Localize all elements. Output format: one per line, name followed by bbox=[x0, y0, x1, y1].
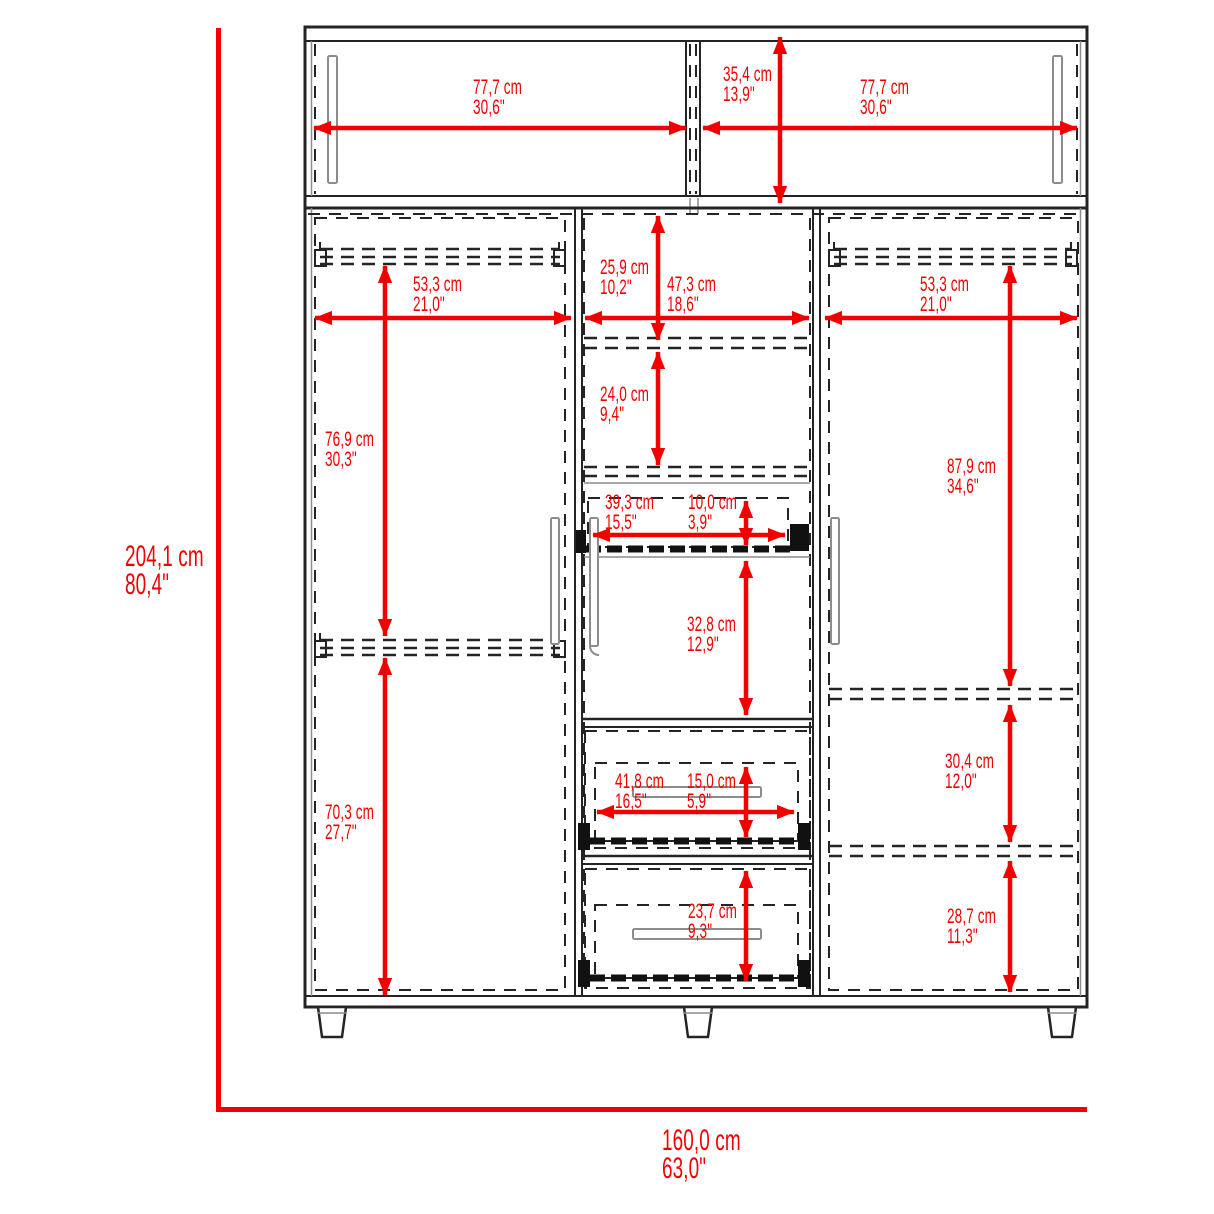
dim-overall-height: 204,1 cm80,4" bbox=[125, 543, 204, 599]
dim-overall-width: 160,0 cm63,0" bbox=[662, 1127, 741, 1183]
dim-pullout-tray-height: 10,0 cm3,9" bbox=[688, 492, 737, 532]
dim-center-second-shelf-height: 24,0 cm9,4" bbox=[600, 384, 649, 424]
left-door-handle bbox=[551, 518, 559, 644]
right-hanging-rod bbox=[829, 242, 1077, 266]
dim-left-section-width: 53,3 cm21,0" bbox=[413, 274, 462, 314]
left-hanging-rod-upper bbox=[315, 242, 565, 266]
dim-center-section-width: 47,3 cm18,6" bbox=[667, 274, 716, 314]
left-hanging-rod-lower bbox=[315, 633, 565, 657]
dim-top-drawer-height: 15,0 cm5,9" bbox=[687, 771, 736, 811]
center-foot bbox=[684, 1007, 712, 1037]
dim-right-section-width: 53,3 cm21,0" bbox=[920, 274, 969, 314]
dim-right-middle-section-height: 30,4 cm12,0" bbox=[945, 751, 994, 791]
hutch-left-door-handle bbox=[328, 56, 337, 183]
main-body bbox=[305, 208, 1087, 1007]
dimension-lines bbox=[216, 28, 1087, 1112]
left-center-divider bbox=[575, 208, 582, 996]
right-section bbox=[829, 218, 1078, 990]
feet bbox=[318, 1007, 1076, 1037]
left-foot bbox=[318, 1007, 346, 1037]
dimension-diagram: 204,1 cm80,4" 160,0 cm63,0" 77,7 cm30,6"… bbox=[0, 0, 1214, 1214]
dim-hutch-left-door-width: 77,7 cm30,6" bbox=[473, 77, 522, 117]
left-section bbox=[315, 218, 565, 990]
center-shelf-2 bbox=[584, 467, 810, 476]
dim-center-top-shelf-height: 25,9 cm10,2" bbox=[600, 257, 649, 297]
right-shelf-lower bbox=[829, 846, 1078, 856]
hutch-right-door-handle bbox=[1053, 56, 1062, 183]
right-door-outline bbox=[829, 218, 1078, 990]
right-door-handle bbox=[831, 518, 839, 644]
hutch-top-section bbox=[305, 27, 1087, 214]
dim-right-upper-section-height: 87,9 cm34,6" bbox=[947, 456, 996, 496]
right-foot bbox=[1048, 1007, 1076, 1037]
left-door-outline bbox=[315, 218, 565, 990]
dim-hutch-right-door-width: 77,7 cm30,6" bbox=[860, 77, 909, 117]
right-shelf-upper bbox=[829, 689, 1078, 699]
dim-left-lower-section-height: 70,3 cm27,7" bbox=[325, 802, 374, 842]
center-shelf-1 bbox=[584, 338, 810, 348]
dim-left-upper-section-height: 76,9 cm30,3" bbox=[325, 429, 374, 469]
center-section bbox=[576, 218, 813, 990]
dim-hutch-height: 35,4 cm13,9" bbox=[723, 64, 772, 104]
dim-pullout-tray-width: 39,3 cm15,5" bbox=[605, 492, 654, 532]
dim-right-lower-section-height: 28,7 cm11,3" bbox=[947, 906, 996, 946]
wardrobe-line-art bbox=[0, 0, 1214, 1214]
dim-drawer-width: 41,8 cm16,5" bbox=[615, 771, 664, 811]
dim-bottom-drawer-height: 23,7 cm9,3" bbox=[688, 901, 737, 941]
center-right-divider bbox=[813, 208, 820, 996]
dim-center-door-height: 32,8 cm12,9" bbox=[687, 614, 736, 654]
